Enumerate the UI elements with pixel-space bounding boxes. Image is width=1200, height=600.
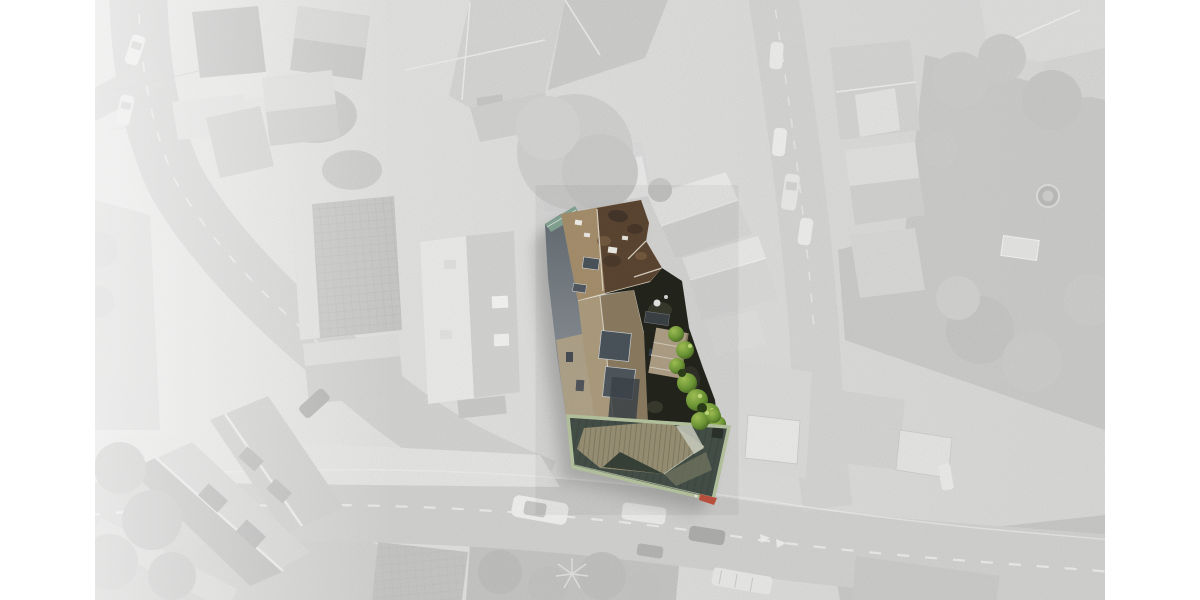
aerial-photo-viewer[interactable]: Faded grayscale aerial photograph of an … — [0, 0, 1200, 600]
left-margin — [0, 0, 95, 600]
right-margin — [1105, 0, 1200, 600]
aerial-photo — [0, 0, 1200, 600]
left-fade — [95, 0, 395, 600]
